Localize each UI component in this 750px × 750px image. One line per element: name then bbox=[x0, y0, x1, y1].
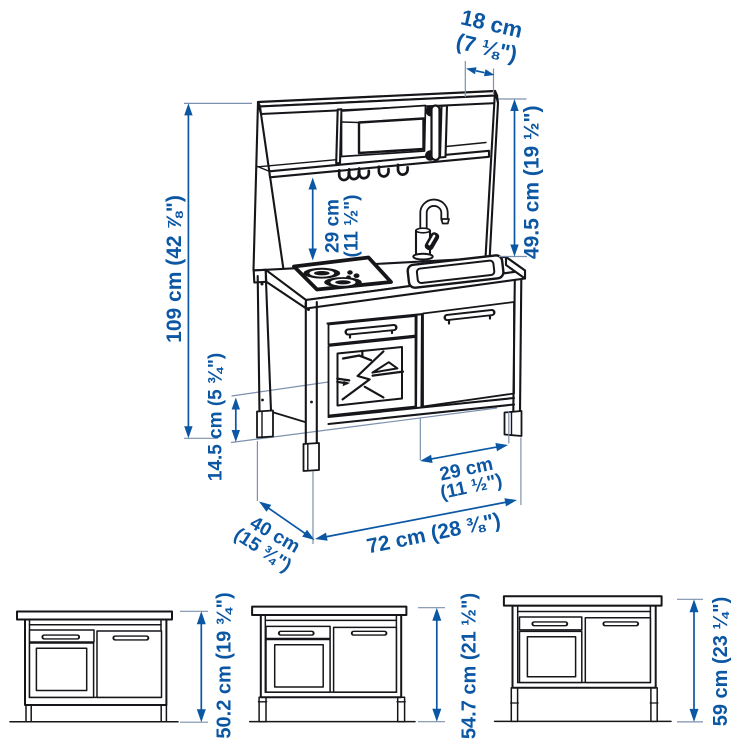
svg-text:109 cm (42 ⅞"): 109 cm (42 ⅞") bbox=[163, 195, 186, 343]
svg-text:59 cm (23 ¼"): 59 cm (23 ¼") bbox=[710, 597, 732, 727]
svg-text:29 cm: 29 cm bbox=[323, 199, 344, 253]
svg-text:49.5 cm (19 ½"): 49.5 cm (19 ½") bbox=[521, 106, 544, 260]
svg-text:50.2 cm (19 ¾"): 50.2 cm (19 ¾") bbox=[214, 592, 236, 738]
svg-text:14.5 cm (5 ¾"): 14.5 cm (5 ¾") bbox=[206, 353, 227, 481]
svg-text:(11 ½"): (11 ½") bbox=[342, 195, 363, 258]
svg-text:54.7 cm (21 ½"): 54.7 cm (21 ½") bbox=[459, 593, 481, 739]
